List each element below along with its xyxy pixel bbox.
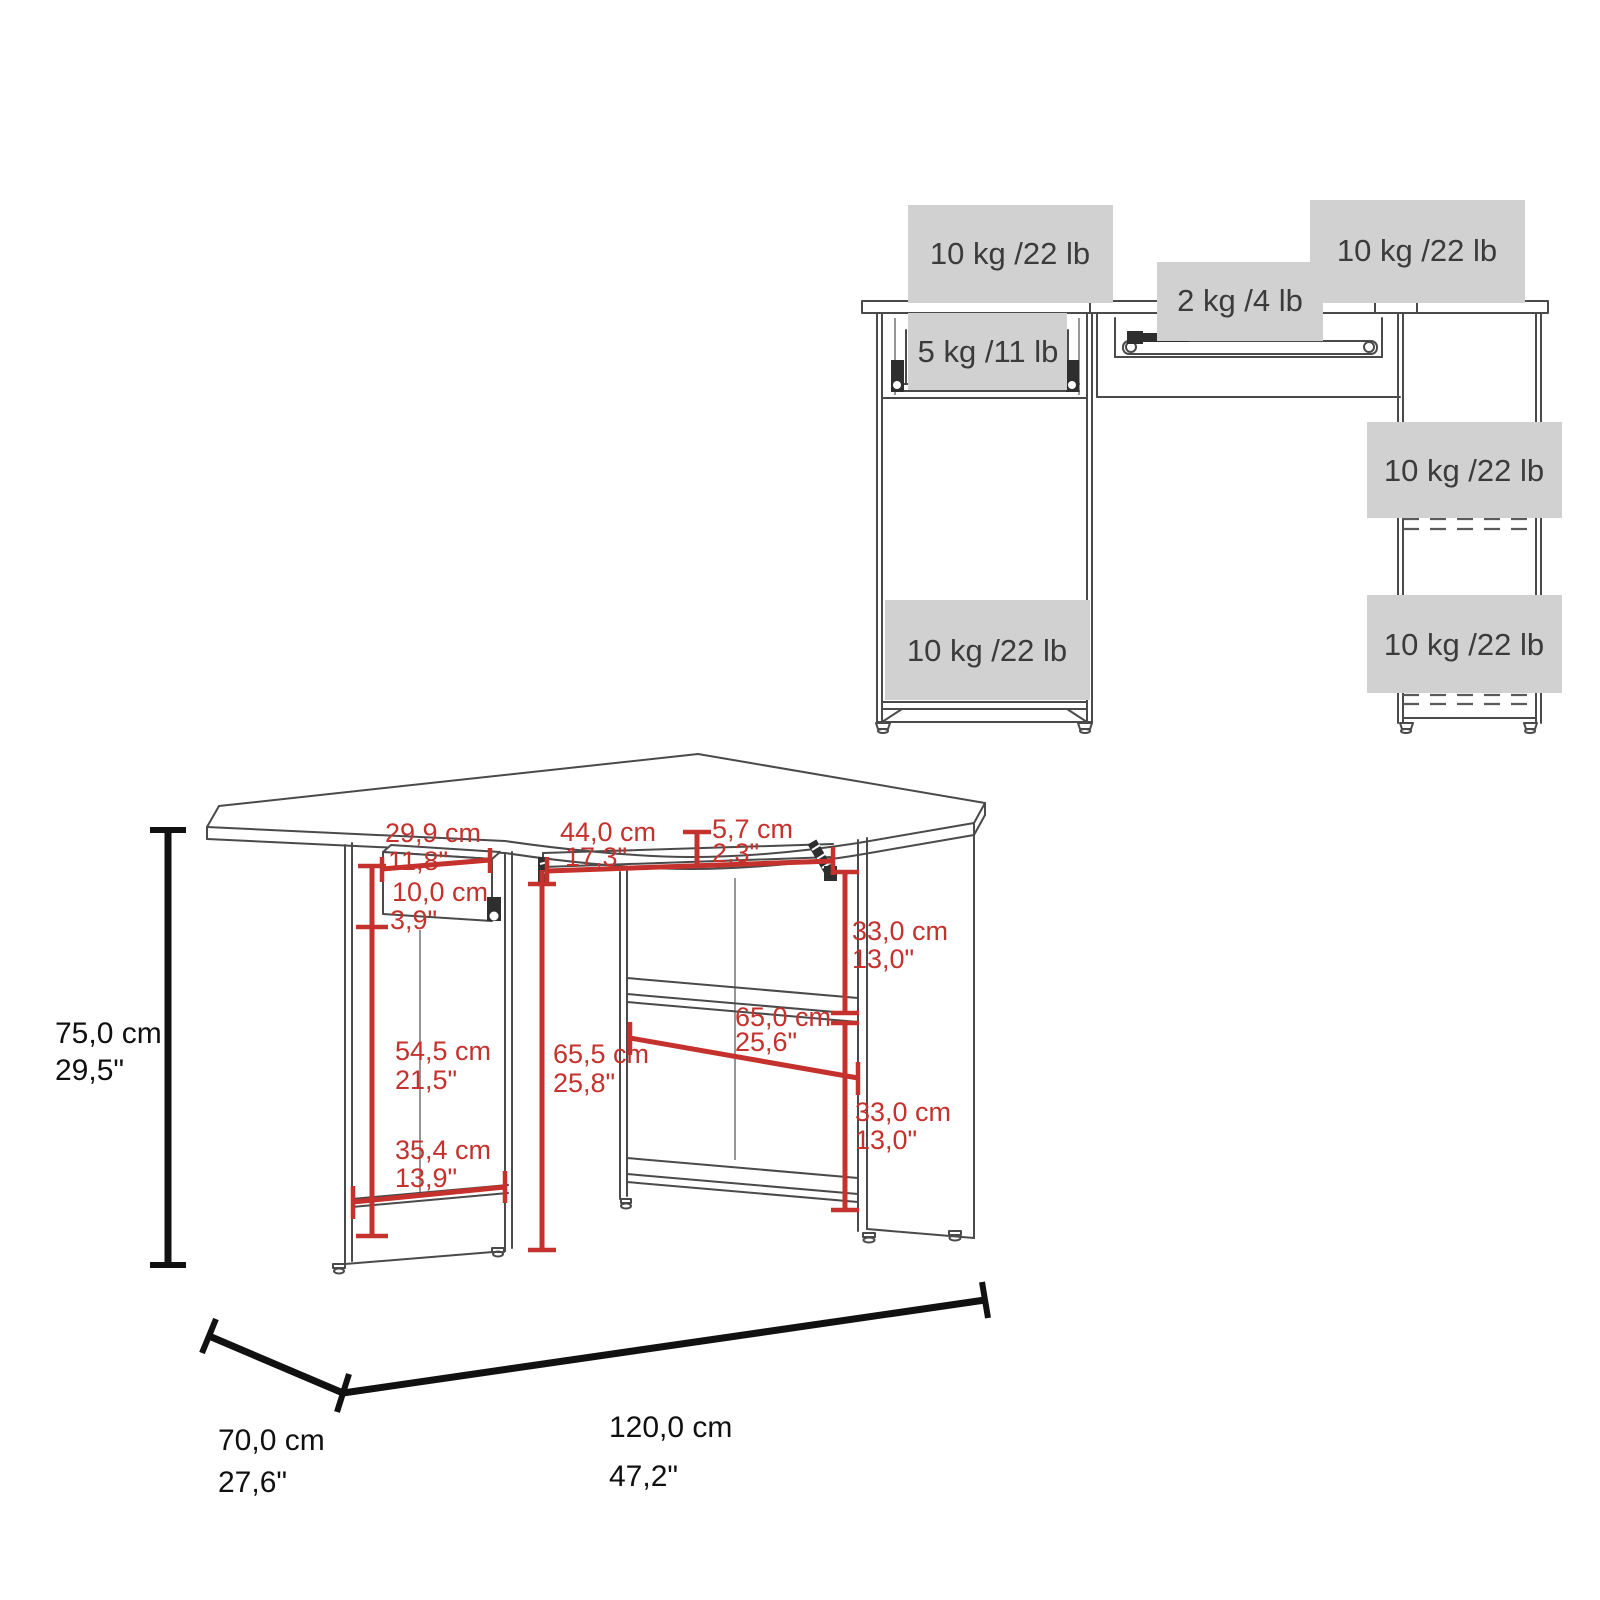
label-overall-depth-in: 27,6" — [218, 1466, 287, 1499]
perspective-dimension-diagram: 29,9 cm 11,8" 10,0 cm 3,9" 44,0 cm 17,3"… — [55, 754, 988, 1499]
label-left-height-in: 21,5" — [395, 1065, 457, 1095]
dim-line-overall-depth — [209, 1336, 343, 1393]
label-right-gap-upper-cm: 33,0 cm — [852, 916, 948, 946]
keyboard-slide-rail — [1123, 341, 1377, 354]
label-overall-width-in: 47,2" — [609, 1460, 678, 1493]
label-left-width-cm: 35,4 cm — [395, 1135, 491, 1165]
label-overall-height-cm: 75,0 cm — [55, 1017, 162, 1050]
foot — [863, 1233, 875, 1237]
label-shelf-width-in: 25,6" — [735, 1027, 797, 1057]
weight-label-desk-left: 10 kg /22 lb — [930, 236, 1090, 271]
weight-label-left-tray: 5 kg /11 lb — [918, 334, 1059, 369]
label-center-clearance-in: 25,8" — [553, 1068, 615, 1098]
pedestal-bottom-shelf — [876, 702, 1092, 733]
right-shelf-section-perspective — [627, 835, 974, 1243]
label-overall-depth-cm: 70,0 cm — [218, 1424, 325, 1457]
product-dimension-sheet: 10 kg /22 lb 10 kg /22 lb 2 kg /4 lb 5 k… — [0, 0, 1600, 1600]
label-drawer-height-in: 3,9" — [390, 905, 437, 935]
foot — [333, 1264, 345, 1268]
label-drawer-width-cm: 29,9 cm — [385, 818, 481, 848]
foot — [621, 1199, 631, 1203]
label-right-gap-upper-in: 13,0" — [852, 944, 914, 974]
weight-label-center-tray: 2 kg /4 lb — [1177, 283, 1303, 318]
label-left-width-in: 13,9" — [395, 1163, 457, 1193]
label-drawer-height-cm: 10,0 cm — [392, 877, 488, 907]
dim-line-overall-width — [343, 1300, 985, 1393]
label-drawer-width-in: 11,8" — [388, 846, 448, 876]
label-overall-width-cm: 120,0 cm — [609, 1411, 732, 1444]
weight-label-desk-right: 10 kg /22 lb — [1337, 233, 1497, 268]
bottom-shelf — [627, 1158, 858, 1178]
weight-label-pedestal-bottom: 10 kg /22 lb — [907, 633, 1067, 668]
label-overall-height-in: 29,5" — [55, 1054, 124, 1087]
overall-dimension-lines: 75,0 cm 29,5" 70,0 cm 27,6" 120,0 cm 47,… — [55, 830, 988, 1499]
middle-shelf — [627, 978, 858, 998]
weight-label-right-upper: 10 kg /22 lb — [1384, 453, 1544, 488]
label-right-gap-lower-in: 13,0" — [855, 1125, 917, 1155]
label-center-clearance-cm: 65,5 cm — [553, 1039, 649, 1069]
weight-label-right-lower: 10 kg /22 lb — [1384, 627, 1544, 662]
dimension-sheet-svg: 10 kg /22 lb 10 kg /22 lb 2 kg /4 lb 5 k… — [0, 0, 1600, 1600]
label-right-gap-lower-cm: 33,0 cm — [855, 1097, 951, 1127]
label-left-height-cm: 54,5 cm — [395, 1036, 491, 1066]
weight-capacity-labels: 10 kg /22 lb 10 kg /22 lb 2 kg /4 lb 5 k… — [885, 200, 1562, 700]
foot — [949, 1231, 961, 1235]
label-keyboard-width-in: 17,3" — [565, 842, 627, 872]
front-view-weight-diagram: 10 kg /22 lb 10 kg /22 lb 2 kg /4 lb 5 k… — [862, 200, 1562, 733]
label-edge-height-in: 2,3" — [712, 838, 759, 868]
